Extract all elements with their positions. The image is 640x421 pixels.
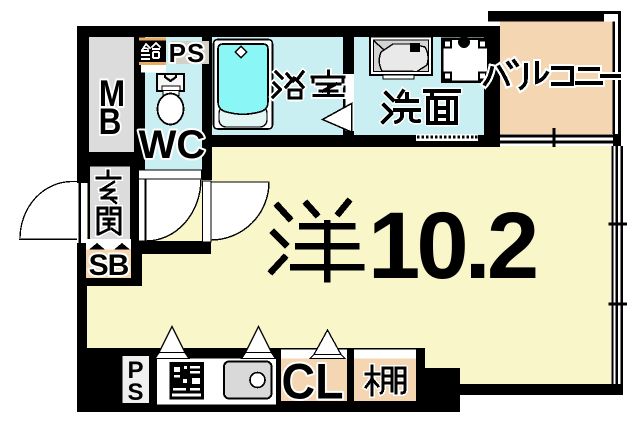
svg-text:B: B — [99, 102, 122, 143]
svg-text:S: S — [127, 379, 143, 406]
svg-text:WC: WC — [139, 123, 206, 167]
svg-text:CL: CL — [282, 354, 344, 410]
svg-text:PS: PS — [169, 38, 206, 68]
svg-text:10.2: 10.2 — [368, 193, 536, 300]
svg-text:SB: SB — [89, 249, 129, 282]
